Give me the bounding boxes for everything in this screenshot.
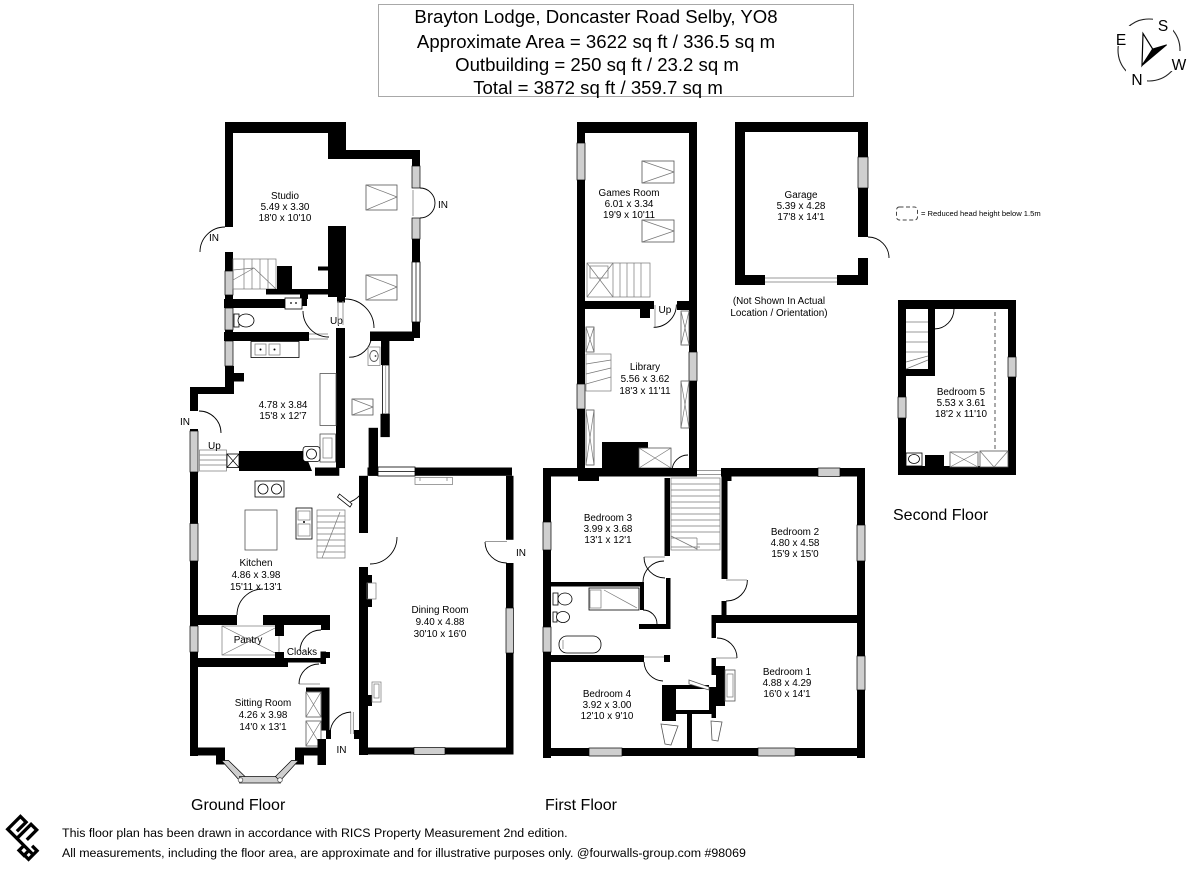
svg-text:Total = 3872 sq ft / 359.7 sq: Total = 3872 sq ft / 359.7 sq m xyxy=(473,77,723,98)
svg-text:This floor plan has been drawn: This floor plan has been drawn in accord… xyxy=(62,826,568,840)
svg-text:16'0 x 14'1: 16'0 x 14'1 xyxy=(763,689,811,700)
svg-text:5.53 x 3.61: 5.53 x 3.61 xyxy=(937,398,986,409)
svg-text:Up: Up xyxy=(330,316,343,327)
svg-text:E: E xyxy=(1116,32,1126,49)
svg-text:15'11 x 13'1: 15'11 x 13'1 xyxy=(230,582,282,593)
svg-text:Bedroom 1: Bedroom 1 xyxy=(763,667,812,678)
svg-text:IN: IN xyxy=(180,417,190,428)
svg-text:= Reduced head height below 1.: = Reduced head height below 1.5m xyxy=(921,209,1041,218)
svg-text:4.86 x 3.98: 4.86 x 3.98 xyxy=(232,570,281,581)
svg-text:Cloaks: Cloaks xyxy=(287,647,317,658)
svg-text:3.92 x 3.00: 3.92 x 3.00 xyxy=(583,700,632,711)
svg-text:S: S xyxy=(1158,18,1168,35)
svg-text:Up: Up xyxy=(659,305,672,316)
svg-text:19'9 x 10'11: 19'9 x 10'11 xyxy=(603,210,655,221)
svg-text:3.99 x 3.68: 3.99 x 3.68 xyxy=(584,524,633,535)
svg-text:5.39 x 4.28: 5.39 x 4.28 xyxy=(777,201,826,212)
svg-text:15'8 x 12'7: 15'8 x 12'7 xyxy=(259,411,306,422)
svg-text:Studio: Studio xyxy=(271,191,300,202)
svg-text:Library: Library xyxy=(630,362,660,373)
svg-text:Outbuilding = 250 sq ft / 23.2: Outbuilding = 250 sq ft / 23.2 sq m xyxy=(455,54,739,75)
svg-text:17'8 x 14'1: 17'8 x 14'1 xyxy=(777,212,825,223)
svg-text:N: N xyxy=(1131,72,1142,89)
svg-text:13'1 x 12'1: 13'1 x 12'1 xyxy=(584,535,632,546)
svg-text:Bedroom 5: Bedroom 5 xyxy=(937,387,986,398)
svg-text:Location / Orientation): Location / Orientation) xyxy=(730,308,827,319)
svg-text:18'2 x 11'10: 18'2 x 11'10 xyxy=(935,409,987,420)
svg-text:30'10 x 16'0: 30'10 x 16'0 xyxy=(414,629,467,640)
svg-text:12'10 x 9'10: 12'10 x 9'10 xyxy=(581,711,634,722)
svg-text:5.49 x 3.30: 5.49 x 3.30 xyxy=(261,202,310,213)
svg-text:Bedroom 2: Bedroom 2 xyxy=(771,527,819,538)
svg-text:Sitting Room: Sitting Room xyxy=(235,698,292,709)
svg-text:(Not Shown In Actual: (Not Shown In Actual xyxy=(733,296,825,307)
svg-text:Garage: Garage xyxy=(785,190,818,201)
svg-text:Ground Floor: Ground Floor xyxy=(191,797,286,814)
svg-text:6.01 x 3.34: 6.01 x 3.34 xyxy=(605,199,654,210)
svg-text:4.78 x 3.84: 4.78 x 3.84 xyxy=(259,400,308,411)
svg-text:4.26 x 3.98: 4.26 x 3.98 xyxy=(239,710,288,721)
svg-text:First Floor: First Floor xyxy=(545,797,618,814)
svg-text:Up: Up xyxy=(208,441,221,452)
svg-text:Games Room: Games Room xyxy=(599,188,660,199)
svg-text:15'9 x 15'0: 15'9 x 15'0 xyxy=(771,549,819,560)
svg-text:Bedroom 4: Bedroom 4 xyxy=(583,689,632,700)
svg-text:18'3 x 11'11: 18'3 x 11'11 xyxy=(619,386,671,397)
svg-text:All measurements, including th: All measurements, including the floor ar… xyxy=(62,846,746,860)
svg-text:W: W xyxy=(1172,57,1187,74)
svg-text:Dining Room: Dining Room xyxy=(411,605,468,616)
svg-text:Bedroom 3: Bedroom 3 xyxy=(584,513,633,524)
svg-text:Second Floor: Second Floor xyxy=(893,507,989,524)
svg-text:5.56 x 3.62: 5.56 x 3.62 xyxy=(621,374,670,385)
svg-text:4.88 x 4.29: 4.88 x 4.29 xyxy=(763,678,812,689)
svg-text:IN: IN xyxy=(209,233,219,244)
svg-text:4.80 x 4.58: 4.80 x 4.58 xyxy=(771,538,820,549)
svg-text:IN: IN xyxy=(438,200,448,211)
svg-text:9.40 x 4.88: 9.40 x 4.88 xyxy=(416,617,465,628)
svg-text:Brayton Lodge, Doncaster Road: Brayton Lodge, Doncaster Road Selby, YO8 xyxy=(414,6,777,27)
svg-text:IN: IN xyxy=(337,745,347,756)
svg-text:Approximate Area = 3622 sq ft: Approximate Area = 3622 sq ft / 336.5 sq… xyxy=(417,31,775,52)
svg-text:14'0 x 13'1: 14'0 x 13'1 xyxy=(239,722,287,733)
svg-text:IN: IN xyxy=(516,548,526,559)
svg-text:Kitchen: Kitchen xyxy=(240,558,273,569)
svg-text:18'0 x 10'10: 18'0 x 10'10 xyxy=(259,213,312,224)
svg-text:Pantry: Pantry xyxy=(234,635,263,646)
